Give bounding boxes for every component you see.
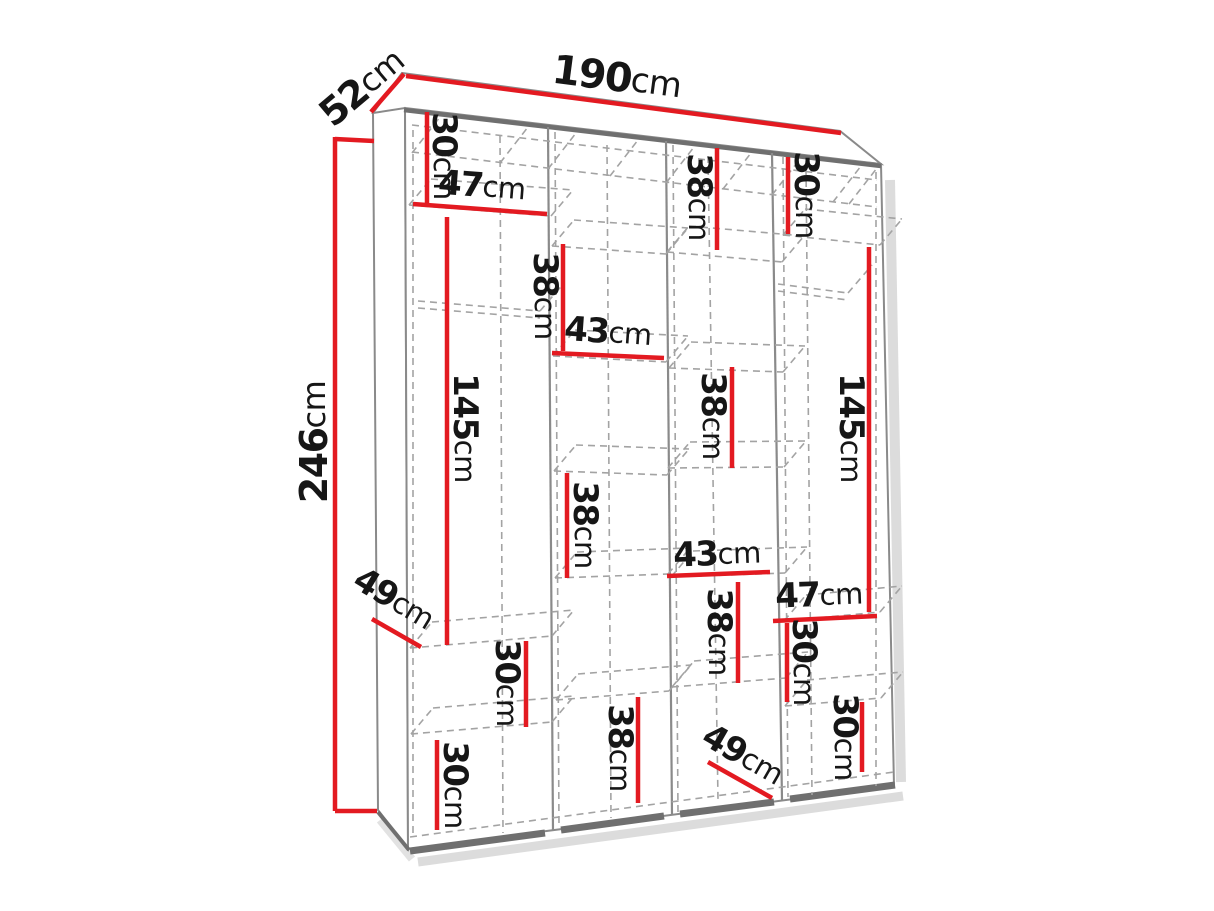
dimension-unit: cm (490, 684, 524, 727)
dimension-sec3-width-43: 43cm (667, 532, 770, 576)
dimension-sec2-top-38: 38cm (525, 244, 565, 351)
dimension-sec1-mid-30: 30cm (487, 639, 527, 727)
dimension-label-sec2-mid-38: 38cm (565, 481, 605, 569)
dimension-value: 30 (424, 112, 464, 157)
dimension-unit: cm (819, 576, 863, 611)
dimension-value: 38 (699, 588, 739, 632)
dimension-unit: cm (682, 198, 716, 241)
dimension-value: 43 (673, 534, 719, 576)
dimension-sec4-bottom-30: 30cm (825, 693, 865, 781)
dimension-unit: cm (438, 786, 472, 829)
diagram-stage: 190cm52cm246cm30cm47cm145cm49cm30cm30cm3… (0, 0, 1214, 911)
dimension-label-sec1-hanging-145: 145cm (445, 373, 485, 483)
dimension-sec4-top-30: 30cm (786, 151, 826, 239)
dimension-label-sec2-bottom-38: 38cm (600, 704, 640, 792)
dimension-label-sec1-mid-30: 30cm (487, 639, 527, 727)
dimension-label-sec3-width-43: 43cm (673, 532, 762, 575)
dimension-value: 30 (786, 151, 826, 196)
dimension-sec3-top-38: 38cm (679, 148, 719, 250)
dimension-label-sec4-width-47: 47cm (775, 573, 864, 616)
dimension-label-sec4-mid-30: 30cm (784, 618, 824, 706)
dimension-label-sec3-lower-38: 38cm (699, 588, 739, 676)
dimension-unit: cm (628, 60, 684, 106)
dimension-label-sec4-bottom-30: 30cm (825, 693, 865, 781)
dimension-unit: cm (528, 297, 562, 340)
dimension-label-sec4-top-30: 30cm (786, 151, 826, 239)
dimension-label-overall-height-left: 246cm (292, 381, 336, 504)
dimension-sec1-bottom-30: 30cm (435, 740, 475, 830)
dimension-sec2-bottom-38: 38cm (600, 697, 640, 803)
dimension-sec2-mid-38: 38cm (565, 473, 605, 578)
dimension-value: 30 (825, 693, 865, 738)
dimension-unit: cm (696, 417, 730, 460)
dimension-line-overall-height-left (335, 139, 374, 141)
dimension-unit: cm (607, 315, 652, 352)
dimension-value: 246 (292, 428, 336, 503)
dimension-sec4-mid-30: 30cm (784, 618, 824, 706)
wardrobe-dimension-diagram: 190cm52cm246cm30cm47cm145cm49cm30cm30cm3… (0, 0, 1214, 911)
dimension-unit: cm (787, 663, 821, 706)
dimension-unit: cm (789, 196, 823, 239)
dimension-unit: cm (834, 440, 868, 483)
dimension-label-sec4-hanging-145: 145cm (831, 373, 871, 483)
dimension-value: 38 (525, 252, 565, 296)
dimension-label-sec3-upper-38: 38cm (693, 372, 733, 460)
dimension-value: 30 (487, 639, 527, 684)
dimension-unit: cm (717, 535, 761, 570)
dimension-unit: cm (448, 440, 482, 483)
dimension-label-sec1-bottom-30: 30cm (435, 741, 475, 829)
dimension-unit: cm (568, 526, 602, 569)
dimension-value: 38 (679, 153, 719, 197)
dimension-value: 30 (784, 618, 824, 663)
dimension-overall-height-left: 246cm (292, 137, 377, 811)
dimension-unit: cm (603, 749, 637, 792)
dimension-value: 38 (600, 704, 640, 748)
dimension-value: 38 (565, 481, 605, 525)
dimension-value: 145 (445, 373, 485, 439)
dimension-sec3-lower-38: 38cm (699, 582, 739, 683)
dimension-label-sec3-top-38: 38cm (679, 153, 719, 241)
dimension-value: 47 (437, 163, 484, 206)
dimension-value: 47 (775, 575, 821, 617)
left-side-face (373, 108, 408, 849)
dimension-sec3-upper-38: 38cm (693, 367, 733, 468)
dimension-unit: cm (295, 381, 333, 429)
dimension-unit: cm (702, 633, 736, 676)
dimension-value: 30 (435, 741, 475, 786)
dimension-label-sec2-top-38: 38cm (525, 252, 565, 340)
dimension-value: 38 (693, 372, 733, 416)
dimension-unit: cm (828, 738, 862, 781)
dimension-value: 145 (831, 373, 871, 439)
dimension-unit: cm (481, 169, 527, 206)
dimension-value: 43 (563, 309, 610, 352)
